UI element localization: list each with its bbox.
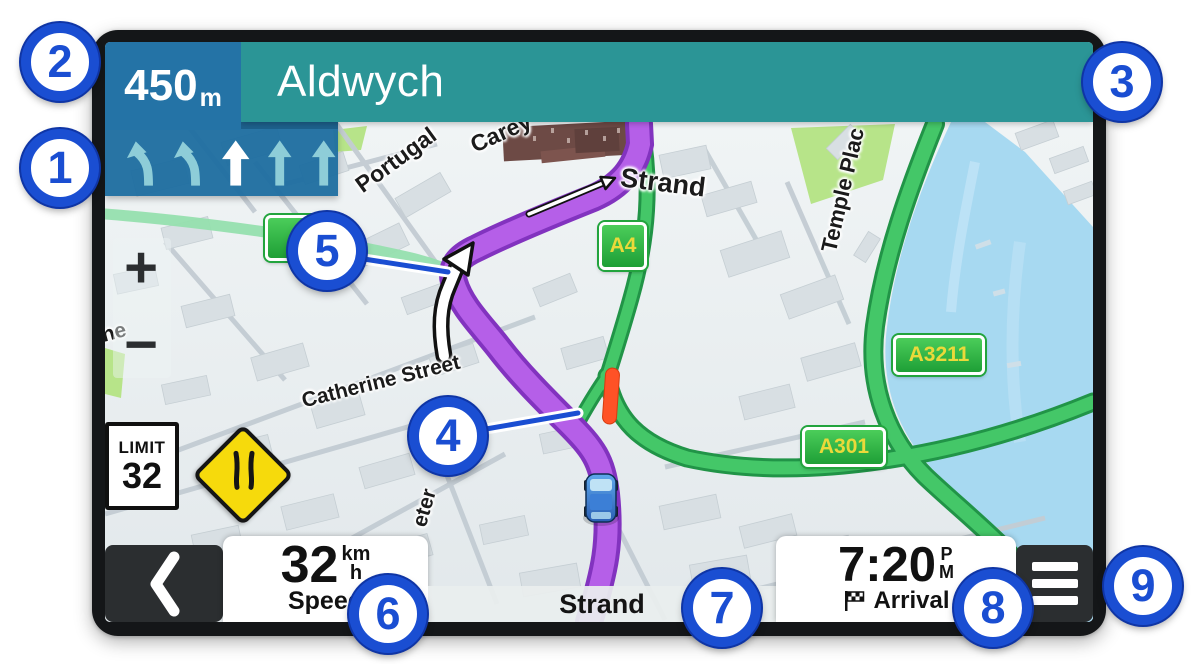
- lane-guidance-panel: [105, 122, 338, 196]
- gps-device-bezel: Portugal Carey Strand Temple Plac Cather…: [92, 30, 1106, 636]
- callout-1: 1: [21, 129, 99, 207]
- lane-arrow-curve-left-icon: [125, 140, 158, 186]
- device-screen: Portugal Carey Strand Temple Plac Cather…: [105, 42, 1093, 622]
- chevron-left-icon: [144, 549, 184, 619]
- road-shield-a3211: A3211: [893, 335, 985, 375]
- zoom-out-button[interactable]: −: [113, 317, 169, 373]
- callout-4: 4: [409, 397, 487, 475]
- current-road-name: Strand: [559, 589, 645, 620]
- lane-arrow-straight-active-icon: [220, 140, 251, 186]
- checkered-flag-icon: [842, 589, 866, 613]
- callout-5: 5: [288, 212, 366, 290]
- callout-8: 8: [954, 569, 1032, 647]
- road-shield-a4: A4: [599, 222, 647, 270]
- road-shield-a301: A301: [802, 427, 886, 467]
- callout-3: 3: [1083, 43, 1161, 121]
- callout-7: 7: [683, 569, 761, 647]
- vehicle-icon: [583, 474, 619, 526]
- zoom-in-button[interactable]: +: [113, 240, 169, 296]
- back-button[interactable]: [105, 545, 223, 622]
- lane-arrow-straight-icon: [265, 140, 294, 186]
- arrival-meridiem-top: P: [941, 546, 953, 563]
- navigation-instruction-bar[interactable]: 450 m Aldwych: [105, 42, 1093, 122]
- manual-figure: Portugal Carey Strand Temple Plac Cather…: [0, 0, 1200, 664]
- callout-9: 9: [1104, 547, 1182, 625]
- distance-value: 450: [124, 46, 197, 126]
- next-turn-distance: 450 m: [105, 42, 241, 130]
- hamburger-icon: [1032, 562, 1078, 571]
- arrival-label: Arrival: [873, 587, 949, 615]
- map-view[interactable]: Portugal Carey Strand Temple Plac Cather…: [105, 122, 1093, 622]
- speed-unit-top: km: [341, 545, 370, 564]
- arrival-time: 7:20: [838, 543, 936, 588]
- callout-2: 2: [21, 23, 99, 101]
- instruction-street-name: Aldwych: [277, 57, 444, 107]
- speed-value: 32: [281, 542, 339, 590]
- lane-arrow-curve-left-icon: [172, 140, 205, 186]
- arrival-meridiem-bottom: M: [939, 564, 954, 581]
- distance-unit: m: [200, 84, 222, 130]
- next-turn-street: Aldwych: [241, 42, 1093, 122]
- hamburger-icon: [1032, 596, 1078, 605]
- speed-limit-sign[interactable]: LIMIT 32: [105, 422, 179, 510]
- callout-6: 6: [349, 575, 427, 653]
- hamburger-icon: [1032, 579, 1078, 588]
- speed-limit-value: 32: [122, 458, 162, 494]
- lane-arrow-straight-icon: [309, 140, 338, 186]
- speed-unit-bottom: h: [350, 564, 362, 583]
